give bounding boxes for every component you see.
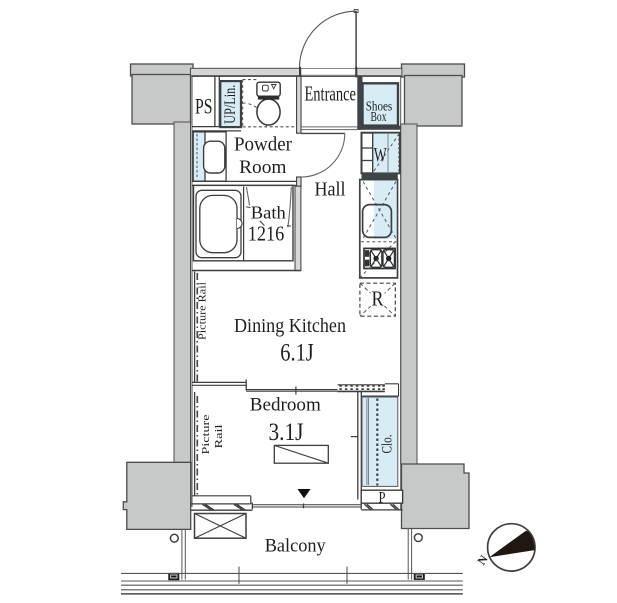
svg-text:R: R: [372, 287, 384, 311]
svg-text:Entrance: Entrance: [304, 81, 356, 105]
svg-text:Rail: Rail: [213, 425, 225, 449]
svg-text:Bedroom: Bedroom: [250, 394, 321, 415]
svg-text:Picture: Picture: [200, 414, 212, 454]
svg-text:Bath: Bath: [251, 203, 286, 223]
svg-text:PS: PS: [195, 94, 213, 119]
svg-text:Room: Room: [239, 157, 287, 178]
svg-text:Balcony: Balcony: [265, 536, 326, 557]
svg-text:6.1J: 6.1J: [280, 339, 314, 366]
svg-text:Box: Box: [371, 110, 387, 125]
svg-text:Picture Rail: Picture Rail: [197, 282, 209, 340]
svg-text:W: W: [374, 144, 387, 166]
svg-text:Dining Kitchen: Dining Kitchen: [234, 316, 346, 337]
svg-text:UP/Lin.: UP/Lin.: [222, 85, 239, 124]
svg-text:Hall: Hall: [315, 179, 346, 201]
svg-text:Powder: Powder: [234, 133, 292, 155]
svg-text:3.1J: 3.1J: [269, 419, 304, 446]
svg-text:1216: 1216: [248, 221, 285, 245]
svg-text:P: P: [379, 489, 386, 506]
svg-text:Clo.: Clo.: [379, 435, 395, 454]
